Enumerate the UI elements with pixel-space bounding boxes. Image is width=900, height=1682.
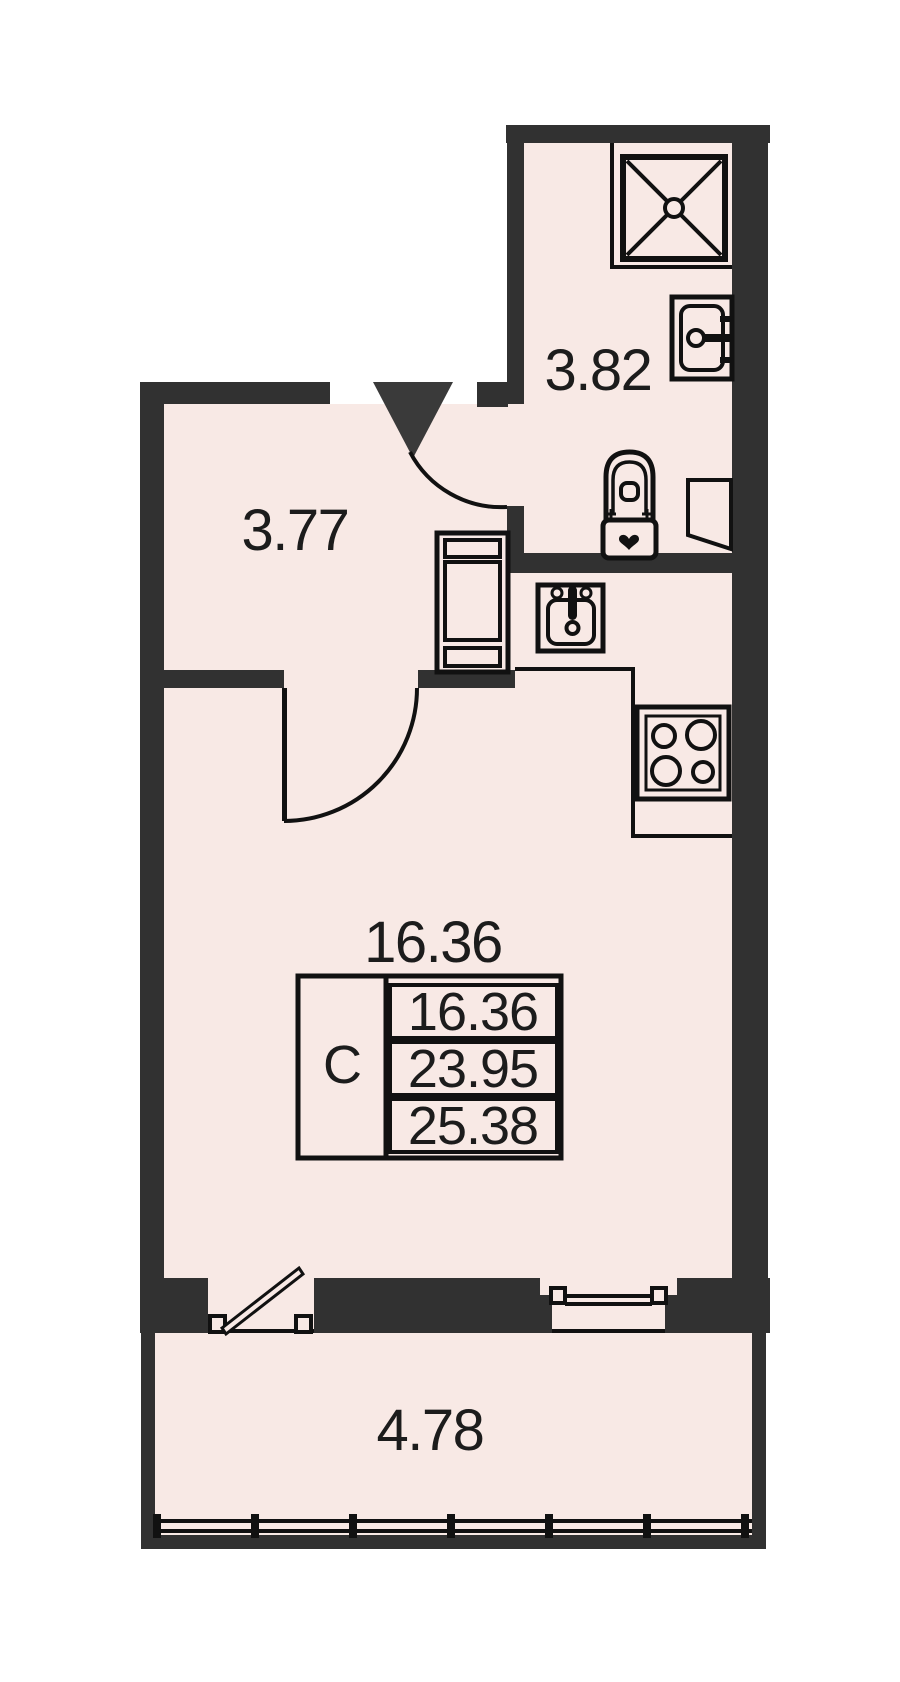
bathroom-area-label: 3.82 <box>545 338 652 403</box>
sink-tap-head <box>567 622 579 634</box>
wall-left <box>140 382 164 1333</box>
ventilation-shaft-icon <box>688 480 731 549</box>
wall-balcony-left <box>141 1333 155 1549</box>
wall-hallway-top <box>140 382 330 404</box>
window-glass-line-1 <box>565 1294 652 1298</box>
sink-tap <box>568 586 577 620</box>
washbasin-tap-head <box>688 330 704 346</box>
sink-handle-left <box>552 588 562 598</box>
balcony-door-jamb-right <box>296 1316 311 1332</box>
interior-door-leaf <box>282 688 287 821</box>
living-room-area-label: 16.36 <box>364 910 502 975</box>
wall-hallway-room-left <box>164 670 284 688</box>
shower-drain <box>665 199 683 217</box>
window <box>540 1278 677 1333</box>
floor-plan-page: С 16.36 23.95 25.38 3.77 3.82 16.36 4.78 <box>0 0 900 1682</box>
toilet-icon <box>603 452 656 558</box>
washbasin-mount-bottom <box>720 357 732 363</box>
window-sill <box>552 1295 665 1333</box>
area-table-type-label: С <box>323 1035 361 1095</box>
area-table-row-3: 25.38 <box>408 1096 538 1156</box>
hallway-area-label: 3.77 <box>242 498 349 563</box>
window-glass-line-2 <box>565 1302 652 1306</box>
wall-bathroom-left-upper <box>507 125 524 404</box>
wall-top <box>506 125 770 143</box>
window-post-right <box>652 1288 666 1303</box>
area-table-row-2: 23.95 <box>408 1039 538 1099</box>
floor-plan: С 16.36 23.95 25.38 3.77 3.82 16.36 4.78 <box>0 0 900 1682</box>
wall-balcony-right <box>752 1333 766 1549</box>
window-post-left <box>551 1288 565 1303</box>
sink-handle-right <box>581 588 591 598</box>
area-table-row-1: 16.36 <box>408 982 538 1042</box>
wall-right <box>732 125 768 1333</box>
washbasin-mount-top <box>720 316 732 322</box>
balcony-area-label: 4.78 <box>377 1398 484 1463</box>
wall-entrance-stub <box>477 382 508 407</box>
window-outer-line <box>552 1329 665 1333</box>
